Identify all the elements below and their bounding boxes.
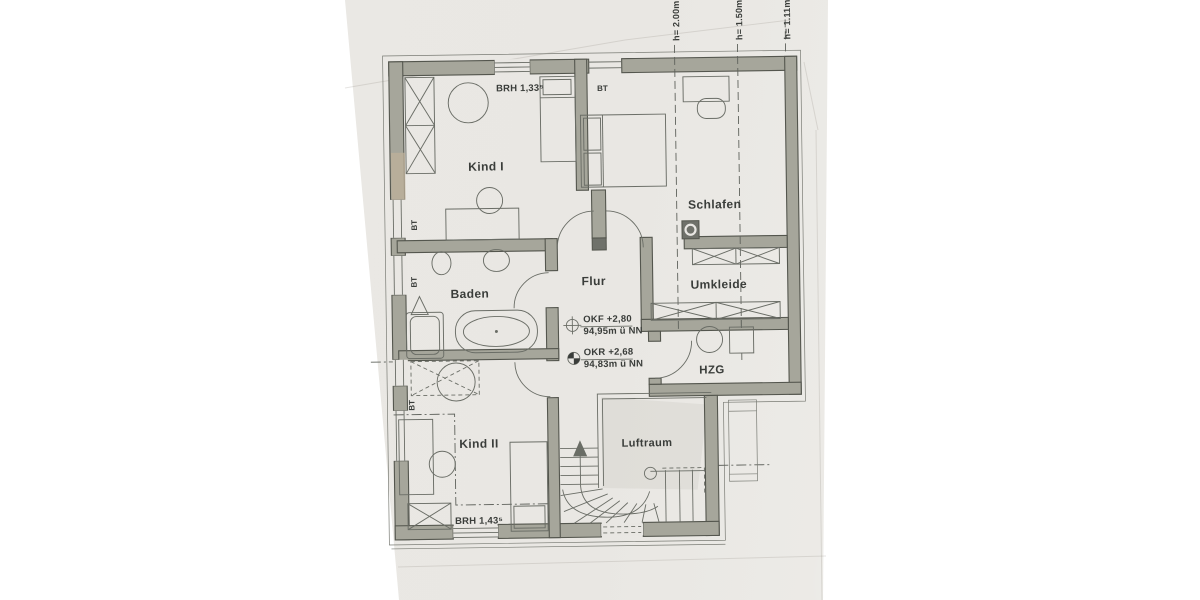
roof-height-3: h= 1.11m	[782, 0, 793, 39]
room-label-schlafen: Schlafen	[688, 197, 741, 212]
bt-label-left-3: BT	[407, 400, 416, 411]
sill-height-kind1: BRH 1,33⁵	[496, 83, 544, 95]
bt-label-left-1: BT	[410, 220, 419, 231]
room-label-luftraum: Luftraum	[621, 437, 672, 450]
level-okr-datum: 94,83m ü NN	[584, 358, 643, 370]
room-label-kind2: Kind II	[459, 436, 499, 451]
room-label-kind1: Kind I	[468, 159, 504, 173]
room-label-umkleide: Umkleide	[690, 277, 747, 292]
floorplan-photo: Kind I Schlafen Baden Flur Umkleide HZG …	[0, 0, 1200, 600]
room-label-baden: Baden	[450, 287, 489, 302]
level-okr-value: OKR +2,68	[584, 347, 634, 359]
level-okf-value: OKF +2,80	[583, 314, 632, 326]
tape-artifact	[391, 153, 406, 200]
bt-label-left-2: BT	[410, 277, 419, 288]
furniture-kind1	[405, 75, 577, 240]
sill-height-kind2: BRH 1,43⁵	[455, 515, 503, 527]
room-label-flur: Flur	[582, 274, 606, 288]
bt-label-top: BT	[597, 84, 608, 93]
fixtures-baden	[405, 249, 537, 359]
room-label-hzg: HZG	[699, 364, 725, 376]
roof-height-2: h= 1.50m	[734, 0, 745, 40]
floorplan-svg: Kind I Schlafen Baden Flur Umkleide HZG …	[0, 0, 1200, 600]
roof-height-1: h= 2.00m	[671, 0, 682, 41]
downspout-element	[728, 400, 757, 481]
level-okf-datum: 94,95m ü NN	[583, 325, 642, 337]
